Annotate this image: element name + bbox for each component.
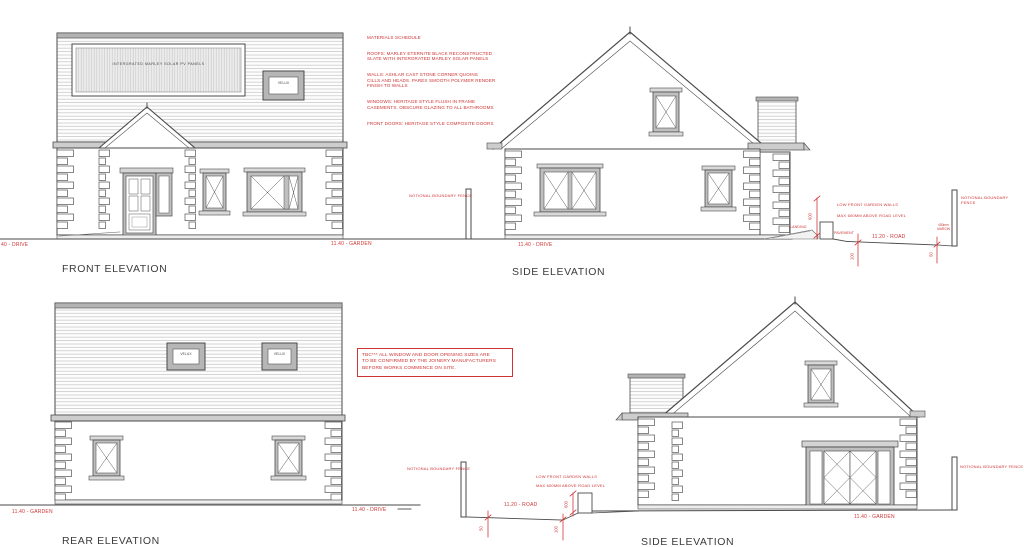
road-line-top — [847, 242, 938, 246]
side-bottom-gable-roof — [661, 297, 919, 417]
margin-line-top — [938, 245, 952, 246]
road-level-top: 11.20 - ROAD — [872, 234, 905, 240]
materials-note-doors: FRONT DOORS: HERITAGE STYLE COMPOSITE DO… — [367, 121, 501, 127]
rear-window-right — [271, 436, 306, 480]
dim-100-top: 100 — [850, 249, 855, 265]
rear-level-garden: 11.40 - GARDEN — [12, 509, 53, 515]
boundary-fence-post-top-right — [952, 190, 957, 246]
side-top-window-large — [534, 164, 606, 216]
materials-note-roofs: ROOFS: MARLEY ETERNITE BLACK RECONSTRUCT… — [367, 51, 501, 62]
kerb-slope-bottom — [563, 513, 578, 520]
rear-eaves-fascia — [51, 415, 345, 421]
side-top-window-upper — [649, 88, 683, 136]
dim-100-bottom: 100 — [554, 522, 559, 538]
front-window-small — [199, 169, 230, 215]
garden-wall-note-top: LOW FRONT GARDEN WALLS MAX 600MM ABOVE R… — [837, 200, 906, 221]
side-bottom-eave-right — [910, 411, 925, 417]
side-bottom-ground-line — [592, 510, 952, 511]
front-elevation-title: FRONT ELEVATION — [62, 263, 167, 275]
drawing-sheet: MATERIALS SCHEDULE ROOFS: MARLEY ETERNIT… — [0, 0, 1024, 547]
front-level-garden: 11.40 - GARDEN — [331, 241, 372, 247]
rear-window-left — [89, 436, 124, 480]
boundary-fence-post-bottom-right — [952, 457, 957, 510]
front-level-drive: 40 - DRIVE — [1, 242, 28, 248]
pavement-label: PAVEMENT — [834, 231, 854, 235]
side-top-plinth — [505, 235, 790, 239]
garden-doors — [802, 441, 898, 508]
front-window-large — [243, 168, 306, 216]
rear-roof-ridge — [55, 303, 342, 308]
rear-level-drive: 11.40 - DRIVE — [352, 507, 386, 513]
boundary-fence-label-bottom-right: NOTIONAL BOUNDARY FENCE — [960, 464, 1023, 469]
side-top-porch-roof — [756, 97, 798, 144]
side-top-gable-roof — [493, 27, 768, 149]
rear-plinth — [55, 500, 342, 504]
dim-600-top: 600 — [808, 209, 813, 225]
garden-wall-top — [820, 222, 833, 239]
dimensions-bottom — [485, 491, 576, 540]
solar-panel-array — [72, 44, 245, 96]
rear-elevation-drawing — [0, 303, 420, 505]
rear-velux-left — [167, 343, 205, 370]
side-top-eave-left — [487, 143, 502, 149]
front-plinth — [57, 235, 343, 239]
road-level-bottom: 11.20 - ROAD — [504, 502, 537, 508]
garden-wall-note-bottom: LOW FRONT GARDEN WALLS MAX 600MM ABOVE R… — [536, 473, 605, 490]
side-bottom-window-upper — [804, 361, 838, 407]
rear-elevation-title: REAR ELEVATION — [62, 535, 160, 547]
landing-label: LANDING — [790, 225, 807, 229]
solar-panel-label: INTERGRATED MARLEY SOLAR PV PANELS — [76, 62, 241, 66]
side-elevation-bottom-drawing — [398, 297, 957, 540]
dim-50-bottom: 50 — [479, 521, 484, 537]
materials-schedule: MATERIALS SCHEDULE ROOFS: MARLEY ETERNIT… — [367, 29, 501, 137]
margin-note: 450mm MARGIN — [936, 224, 951, 232]
rear-velux-right-label: VELUX — [262, 352, 297, 356]
side-top-window-small — [701, 166, 736, 211]
rear-velux-right — [262, 343, 297, 370]
front-velux-window — [263, 71, 304, 100]
dim-600-bottom: 600 — [564, 497, 569, 513]
pavement-line-top — [833, 239, 847, 242]
side-bottom-level-garden: 11.40 - GARDEN — [854, 514, 895, 520]
side-bottom-elevation-title: SIDE ELEVATION — [641, 536, 734, 547]
front-roof-ridge — [57, 33, 343, 38]
garden-wall-bottom — [578, 493, 592, 513]
materials-note-walls: WALLS: ASHLAR CAST STONE CORNER QUOINS C… — [367, 72, 501, 89]
side-top-level-drive: 11.40 - DRIVE — [518, 242, 552, 248]
side-top-elevation-title: SIDE ELEVATION — [512, 266, 605, 278]
boundary-fence-label-bottom-left: NOTIONAL BOUNDARY FENCE — [407, 466, 470, 471]
rear-velux-left-label: VELUX — [167, 352, 205, 356]
boundary-fence-label-top-left: NOTIONAL BOUNDARY FENCE — [409, 193, 472, 198]
materials-schedule-title: MATERIALS SCHEDULE — [367, 35, 501, 41]
materials-note-windows: WINDOWS: HERITAGE STYLE FLUSH IN FRAME C… — [367, 99, 501, 110]
side-bottom-plinth — [638, 505, 917, 509]
dim-50-top: 50 — [929, 247, 934, 263]
tbc-note-box: TBC*** ALL WINDOW AND DOOR OPENING SIZES… — [357, 348, 513, 377]
front-eaves-fascia — [53, 142, 347, 148]
boundary-fence-label-top-right: NOTIONAL BOUNDARY FENCE — [961, 195, 1024, 205]
front-velux-label: VELUX — [263, 81, 304, 85]
